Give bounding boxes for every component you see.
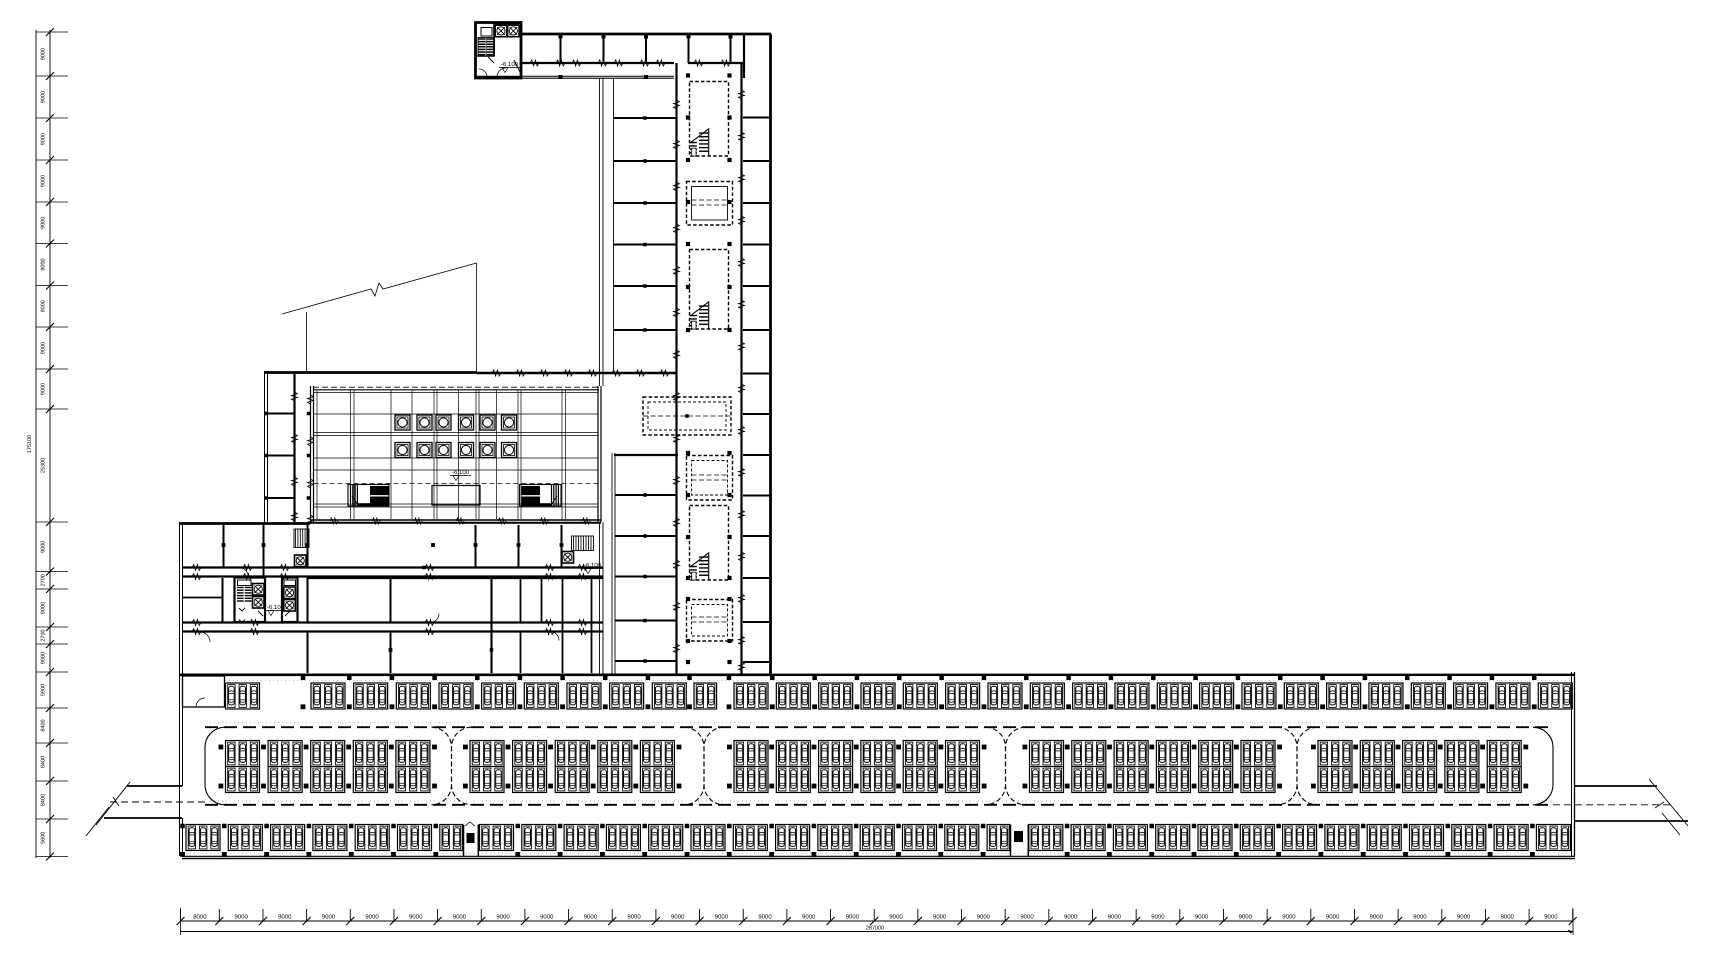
svg-text:5900: 5900 — [41, 684, 47, 696]
svg-text:287000: 287000 — [866, 926, 884, 932]
svg-text:9000: 9000 — [41, 300, 47, 312]
svg-text:9000: 9000 — [41, 175, 47, 187]
svg-text:-6.100: -6.100 — [452, 469, 470, 476]
svg-text:9000: 9000 — [365, 914, 379, 921]
svg-text:9000: 9000 — [933, 914, 947, 921]
svg-text:9000: 9000 — [1108, 914, 1122, 921]
svg-text:9000: 9000 — [41, 133, 47, 145]
svg-text:9000: 9000 — [41, 383, 47, 395]
svg-text:9000: 9000 — [41, 342, 47, 354]
svg-text:-6.100: -6.100 — [584, 562, 602, 569]
svg-text:9000: 9000 — [1195, 914, 1209, 921]
svg-text:9000: 9000 — [41, 258, 47, 270]
svg-text:9000: 9000 — [322, 914, 336, 921]
svg-text:9000: 9000 — [234, 914, 248, 921]
svg-text:9000: 9000 — [584, 914, 598, 921]
svg-text:8000: 8000 — [193, 914, 207, 921]
svg-text:9000: 9000 — [758, 914, 772, 921]
svg-text:9000: 9000 — [1064, 914, 1078, 921]
svg-text:2700: 2700 — [41, 574, 47, 586]
svg-text:8400: 8400 — [41, 719, 47, 731]
svg-text:175100: 175100 — [27, 435, 33, 453]
svg-text:9000: 9000 — [1151, 914, 1165, 921]
svg-text:9000: 9000 — [1370, 914, 1384, 921]
svg-text:9000: 9000 — [1326, 914, 1340, 921]
svg-text:9000: 9000 — [496, 914, 510, 921]
svg-text:9000: 9000 — [1239, 914, 1253, 921]
svg-text:8400: 8400 — [41, 756, 47, 768]
svg-text:5600: 5600 — [41, 832, 47, 844]
svg-text:9000: 9000 — [715, 914, 729, 921]
svg-text:9000: 9000 — [627, 914, 641, 921]
svg-text:9000: 9000 — [1501, 914, 1515, 921]
svg-text:9000: 9000 — [889, 914, 903, 921]
svg-text:9000: 9000 — [671, 914, 685, 921]
svg-text:9000: 9000 — [1020, 914, 1034, 921]
svg-text:9000: 9000 — [41, 602, 47, 614]
svg-text:25300: 25300 — [41, 458, 47, 473]
svg-text:8400: 8400 — [41, 794, 47, 806]
svg-text:9000: 9000 — [1457, 914, 1471, 921]
svg-text:9000: 9000 — [1413, 914, 1427, 921]
svg-text:9000: 9000 — [41, 541, 47, 553]
svg-text:9000: 9000 — [802, 914, 816, 921]
svg-text:9000: 9000 — [41, 48, 47, 60]
svg-text:9000: 9000 — [1544, 914, 1558, 921]
svg-text:9000: 9000 — [409, 914, 423, 921]
svg-text:9000: 9000 — [1282, 914, 1296, 921]
svg-text:9000: 9000 — [540, 914, 554, 921]
svg-text:9000: 9000 — [846, 914, 860, 921]
svg-text:9000: 9000 — [977, 914, 991, 921]
svg-text:9000: 9000 — [41, 91, 47, 103]
svg-text:9000: 9000 — [453, 914, 467, 921]
svg-text:-6.100: -6.100 — [267, 604, 285, 611]
svg-text:9000: 9000 — [41, 652, 47, 664]
svg-text:9000: 9000 — [41, 217, 47, 229]
svg-text:9000: 9000 — [278, 914, 292, 921]
svg-text:2700: 2700 — [41, 629, 47, 641]
